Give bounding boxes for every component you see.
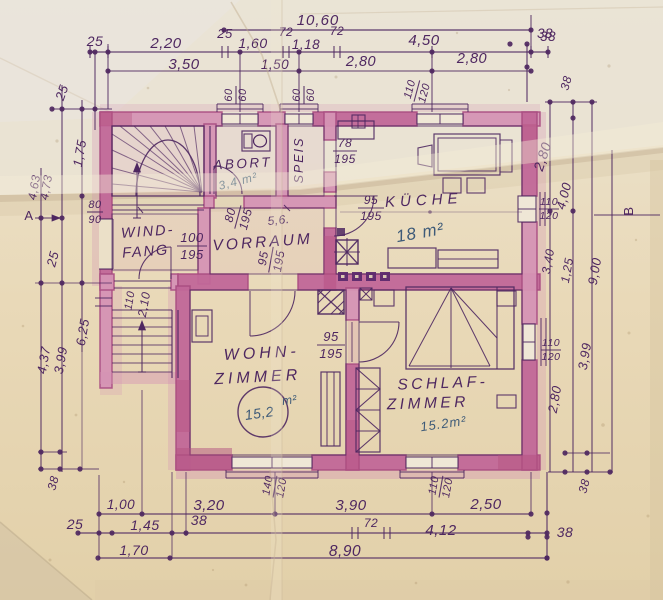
svg-text:25: 25 [216,26,233,41]
svg-text:1,60: 1,60 [238,35,267,51]
svg-text:FANG: FANG [122,242,170,261]
svg-text:60: 60 [305,88,317,102]
svg-text:1,45: 1,45 [130,517,159,533]
svg-text:1,18: 1,18 [292,37,320,52]
svg-text:78: 78 [338,136,352,150]
svg-text:38: 38 [557,524,574,540]
svg-text:B: B [621,206,636,215]
svg-text:SCHLAF-: SCHLAF- [397,373,488,393]
svg-text:110: 110 [540,196,558,208]
svg-text:72: 72 [364,516,378,530]
svg-text:3,90: 3,90 [335,497,366,514]
svg-text:195: 195 [334,152,356,166]
svg-text:A: A [24,208,33,223]
svg-text:2,80: 2,80 [456,51,487,67]
svg-text:80: 80 [88,199,102,211]
svg-text:2,80: 2,80 [345,54,376,70]
svg-text:4,50: 4,50 [408,32,439,49]
svg-text:195: 195 [319,346,342,361]
svg-text:110: 110 [542,337,560,349]
svg-text:3,50: 3,50 [168,56,199,73]
svg-text:120: 120 [539,210,558,222]
svg-text:8,90: 8,90 [329,543,361,560]
svg-text:195: 195 [180,247,203,262]
svg-text:195: 195 [360,209,382,223]
svg-text:2,50: 2,50 [469,496,501,513]
svg-text:95: 95 [364,193,378,207]
svg-text:60: 60 [237,88,249,102]
svg-text:1,00: 1,00 [107,497,135,512]
svg-text:60: 60 [223,88,235,102]
svg-text:95: 95 [323,329,339,344]
svg-text:25: 25 [86,33,104,49]
svg-text:100: 100 [180,230,203,245]
svg-text:4,12: 4,12 [425,522,456,539]
svg-text:m²: m² [281,392,298,408]
svg-text:1,70: 1,70 [119,542,148,558]
svg-text:90: 90 [88,214,102,226]
svg-text:120: 120 [541,351,560,363]
svg-text:38: 38 [191,512,208,528]
svg-text:2,20: 2,20 [149,35,181,52]
svg-text:25: 25 [66,516,84,532]
svg-text:72: 72 [330,24,344,38]
svg-text:60: 60 [291,88,303,102]
svg-text:ZIMMER: ZIMMER [386,394,470,414]
svg-text:95: 95 [255,250,271,267]
svg-text:38: 38 [537,26,553,41]
svg-text:ABORT: ABORT [212,154,272,172]
